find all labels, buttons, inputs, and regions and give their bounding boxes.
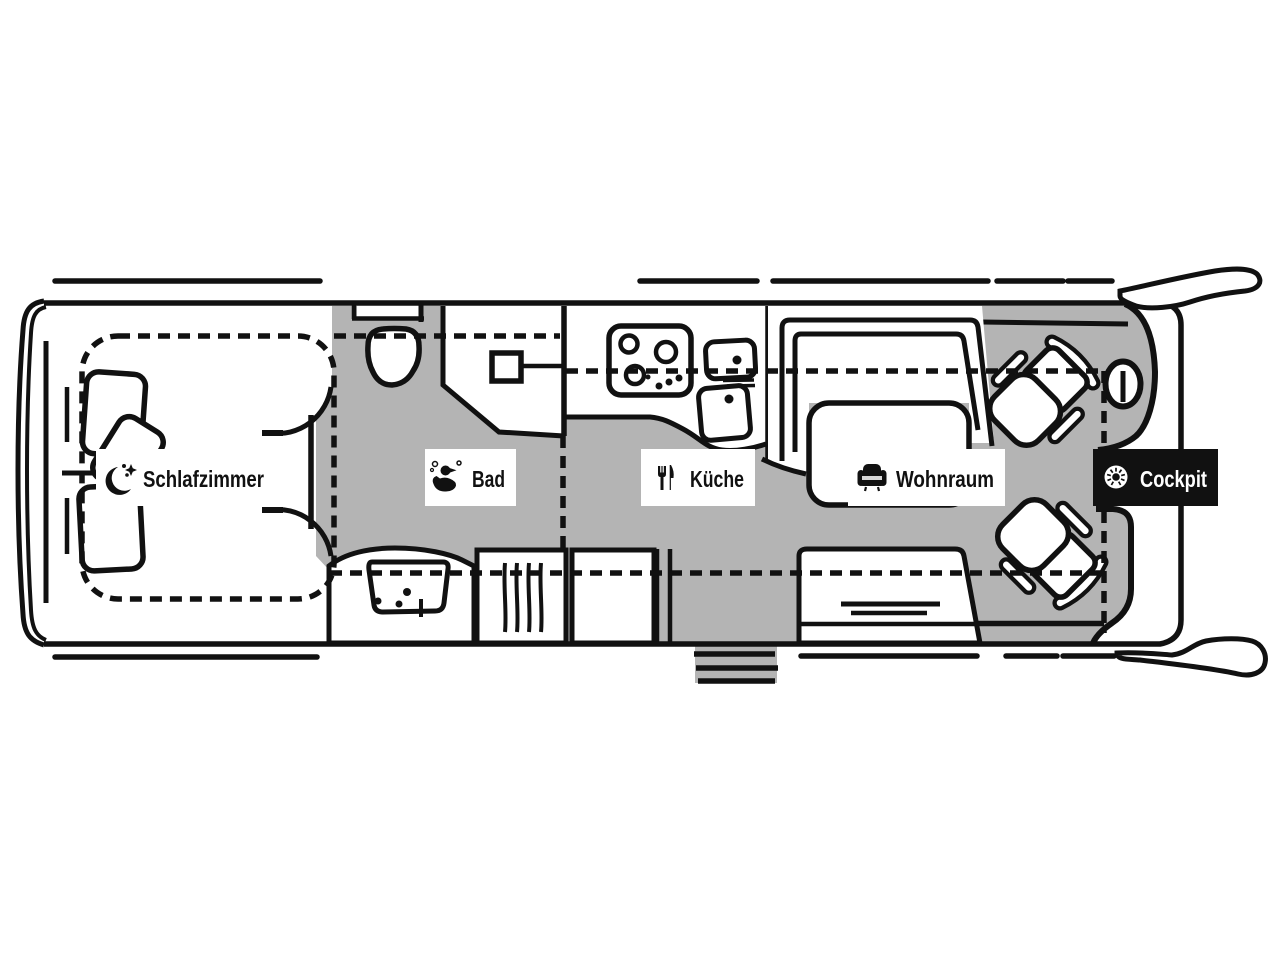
- svg-text:Schlafzimmer: Schlafzimmer: [143, 466, 264, 492]
- svg-text:Bad: Bad: [472, 466, 505, 492]
- svg-text:Cockpit: Cockpit: [1140, 466, 1207, 492]
- svg-text:Küche: Küche: [690, 466, 744, 492]
- svg-text:Wohnraum: Wohnraum: [896, 466, 994, 492]
